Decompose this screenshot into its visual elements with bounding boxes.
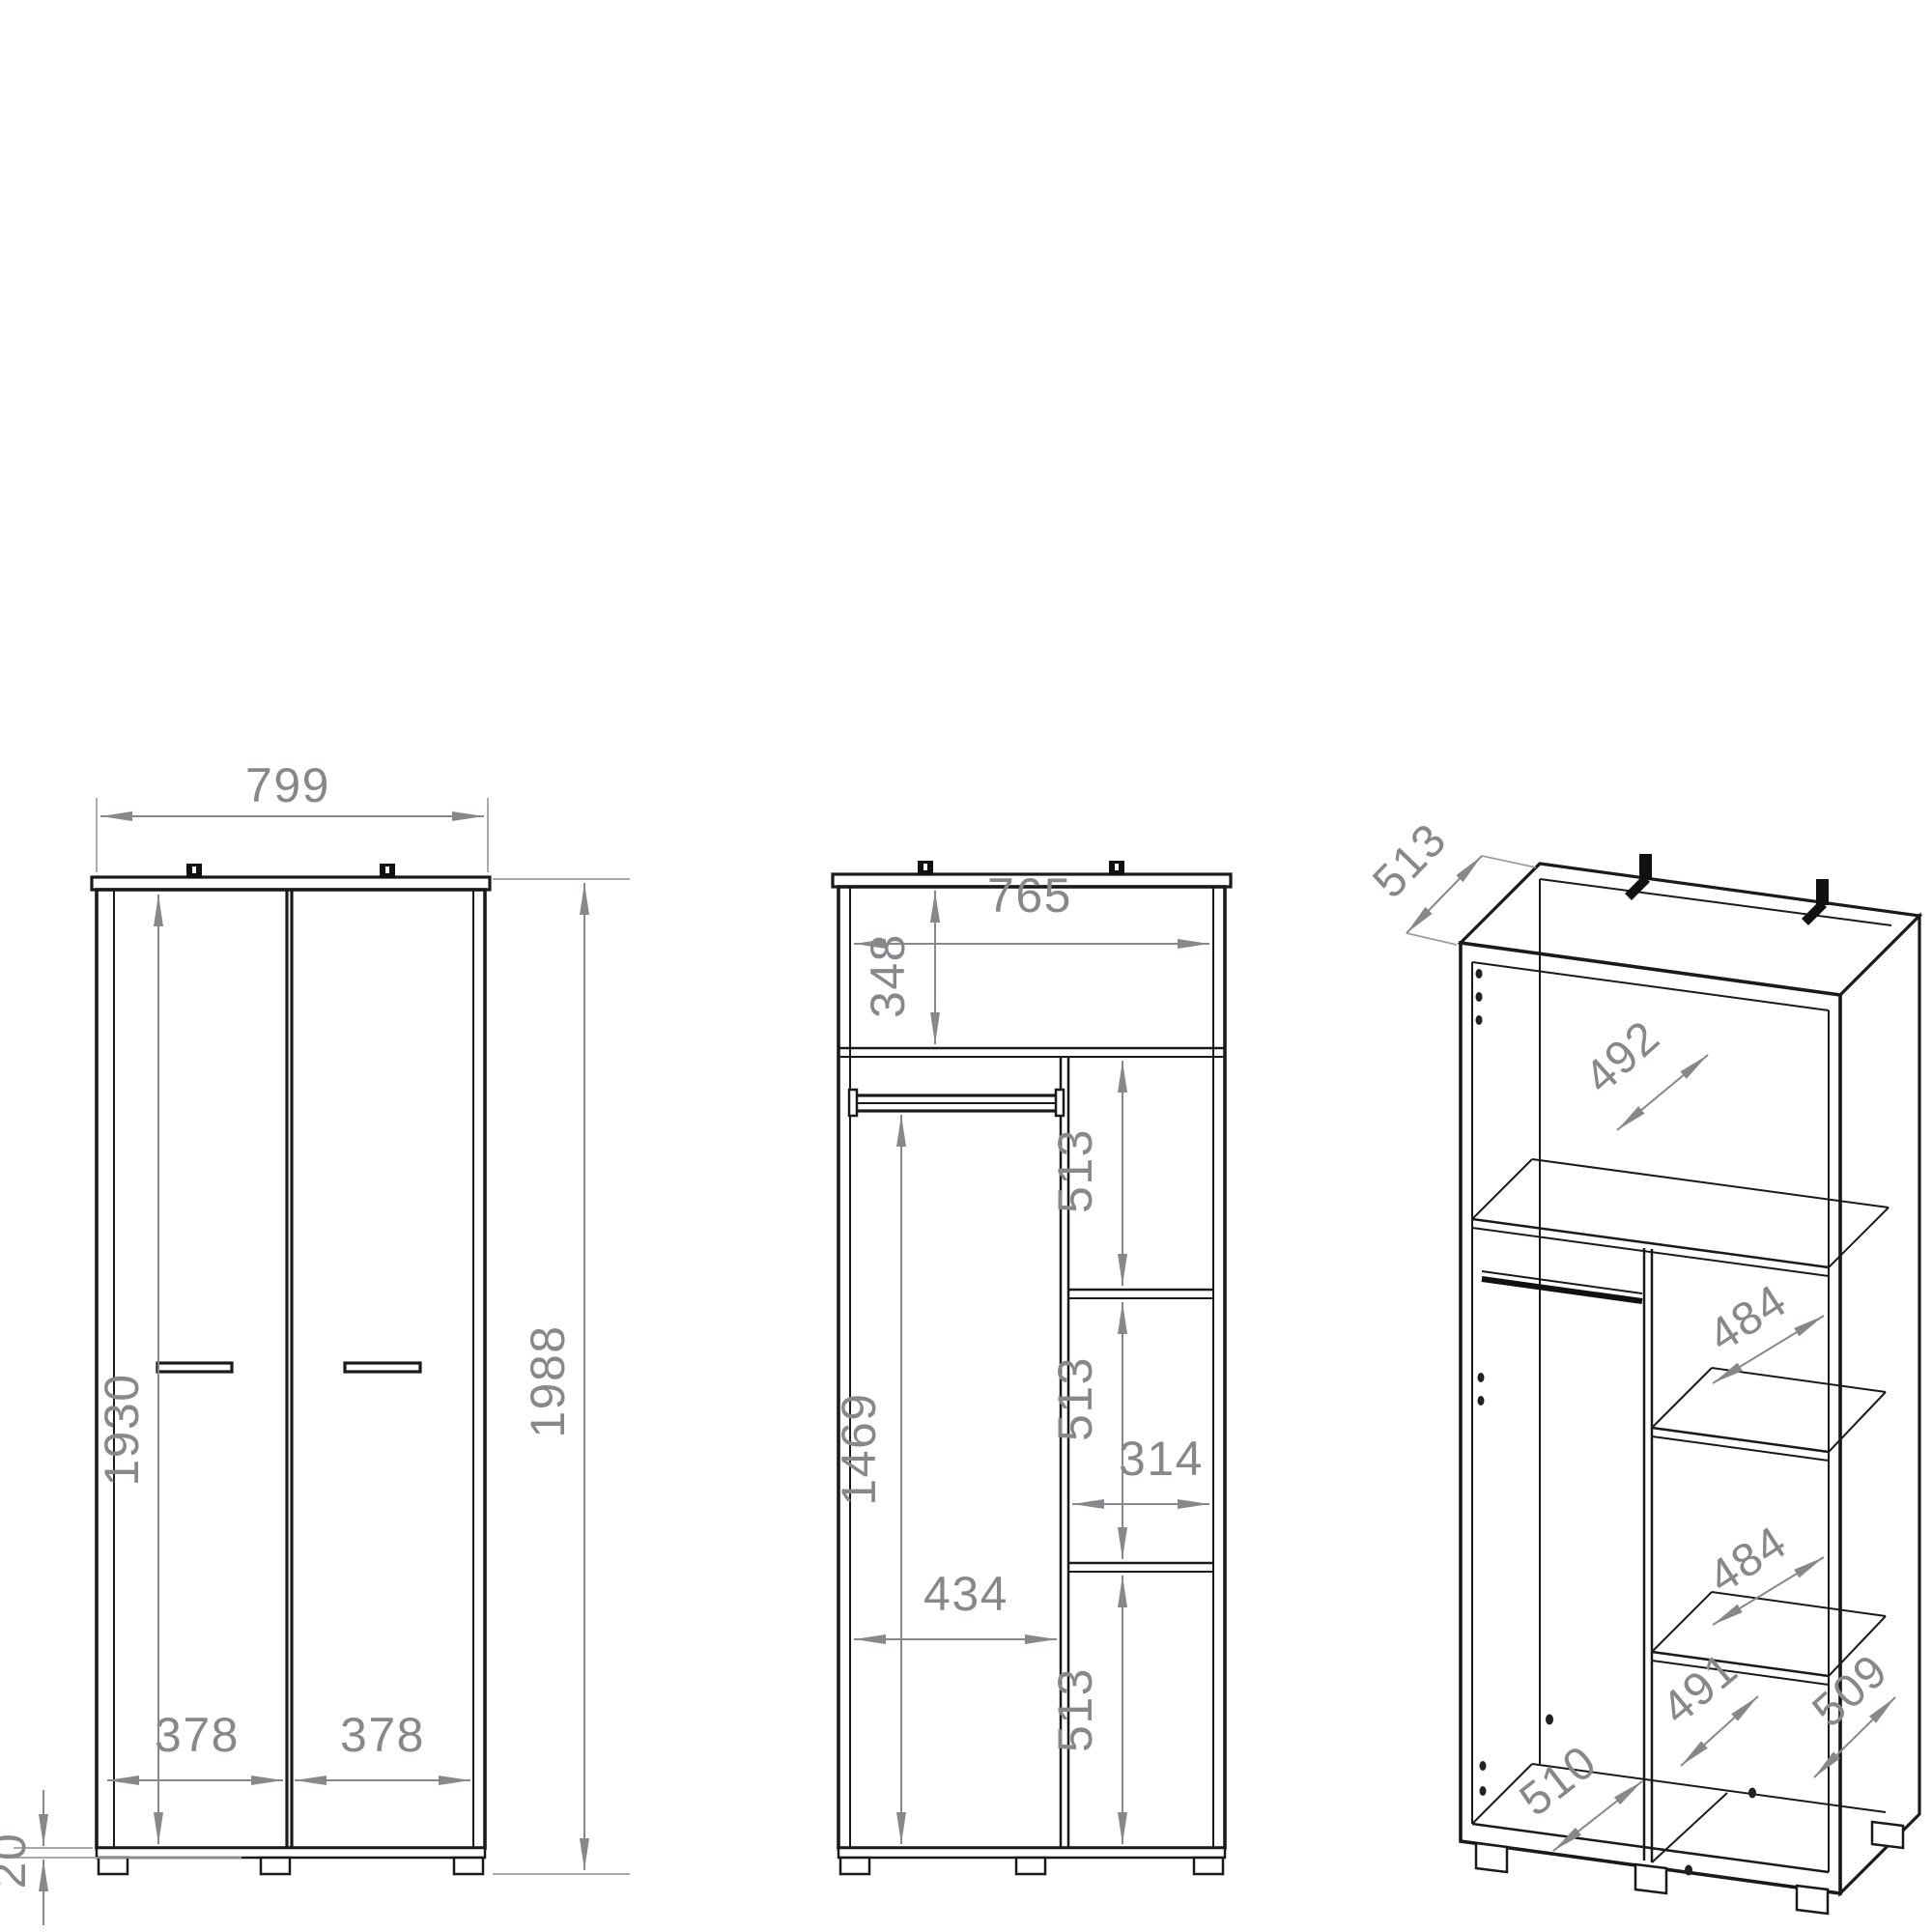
foot [1016, 1858, 1045, 1874]
bracket-slot [1115, 864, 1119, 870]
foot [1194, 1858, 1223, 1874]
dim-label-shelf-gap-1: 513 [1048, 1128, 1102, 1213]
dim-label-plinth: 20 [0, 1833, 36, 1889]
rail-end-cap [849, 1090, 857, 1116]
pin-hole [1476, 992, 1483, 1002]
dim-label-right-door: 378 [340, 1708, 425, 1762]
door-handle-left [157, 1363, 232, 1372]
pin-hole [1546, 1715, 1553, 1725]
dim-label-height: 1988 [521, 1324, 575, 1437]
wall-bracket-icon [380, 864, 395, 878]
isometric-view: 513 492 484 484 491 510 509 [1363, 813, 1919, 1914]
top-panel [92, 877, 490, 890]
foot [99, 1858, 128, 1874]
dim-label-width: 799 [245, 758, 330, 812]
front-view: 799 1930 1988 378 [0, 758, 630, 1925]
pin-hole [1685, 1865, 1692, 1876]
foot [1476, 1843, 1507, 1872]
pin-hole [1480, 1761, 1487, 1771]
ext-line [1482, 856, 1536, 867]
dim-label-inner-width: 765 [987, 868, 1072, 923]
foot [1872, 1822, 1903, 1848]
dim-label-shelf-gap-2: 513 [1048, 1356, 1102, 1441]
pin-hole [1478, 1396, 1485, 1406]
dim-label-rail-drop: 1469 [832, 1392, 886, 1505]
interior-view: 765 348 513 513 314 513 1469 434 [832, 861, 1231, 1874]
wardrobe-drawing: 799 1930 1988 378 [0, 0, 1932, 1932]
dim-label-right-inner-width: 314 [1119, 1432, 1204, 1486]
front-opening [1461, 943, 1840, 1893]
bracket-upright [1639, 854, 1652, 880]
dim-label-left-inner-width: 434 [923, 1567, 1009, 1621]
technical-drawing-page: 799 1930 1988 378 [0, 0, 1932, 1932]
foot [1797, 1886, 1828, 1914]
plinth [838, 1848, 1225, 1858]
dim-label-depth: 513 [1363, 813, 1457, 908]
pin-hole [1476, 1015, 1483, 1025]
wall-bracket-icon [918, 861, 933, 875]
right-side-face [1840, 916, 1919, 1893]
foot [840, 1858, 869, 1874]
dim-label-shelf-gap-3: 513 [1048, 1667, 1102, 1752]
foot [261, 1858, 290, 1874]
pin-hole [1476, 969, 1483, 979]
rail-end-cap [1056, 1090, 1064, 1116]
bracket-slot [923, 864, 927, 870]
dim-label-left-door: 378 [155, 1708, 240, 1762]
dim-label-door-height: 1930 [95, 1373, 149, 1486]
bracket-upright [1816, 879, 1829, 905]
foot [454, 1858, 483, 1874]
wall-bracket-icon [186, 864, 202, 878]
bracket-slot [385, 867, 389, 873]
pin-hole [1480, 1786, 1487, 1796]
door-handle-right [345, 1363, 420, 1372]
pin-hole [1478, 1373, 1485, 1382]
ext-line [1406, 933, 1457, 945]
bracket-slot [192, 867, 196, 873]
foot [1635, 1864, 1666, 1893]
pin-hole [1748, 1788, 1756, 1799]
cabinet-body [838, 887, 1225, 1848]
wall-bracket-icon [1109, 861, 1124, 875]
plinth [97, 1848, 485, 1858]
dim-label-top-compartment: 348 [861, 933, 915, 1018]
